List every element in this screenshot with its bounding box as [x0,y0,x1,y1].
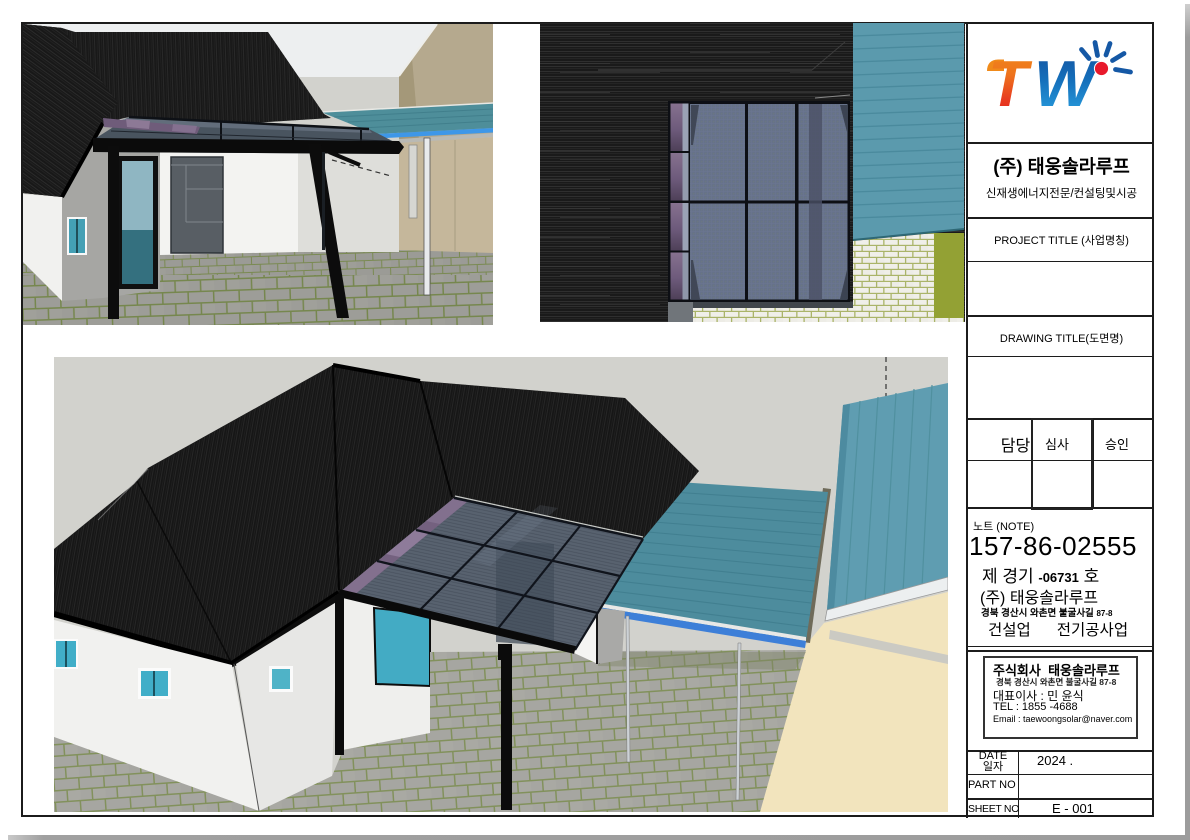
svg-text:T: T [988,47,1033,120]
